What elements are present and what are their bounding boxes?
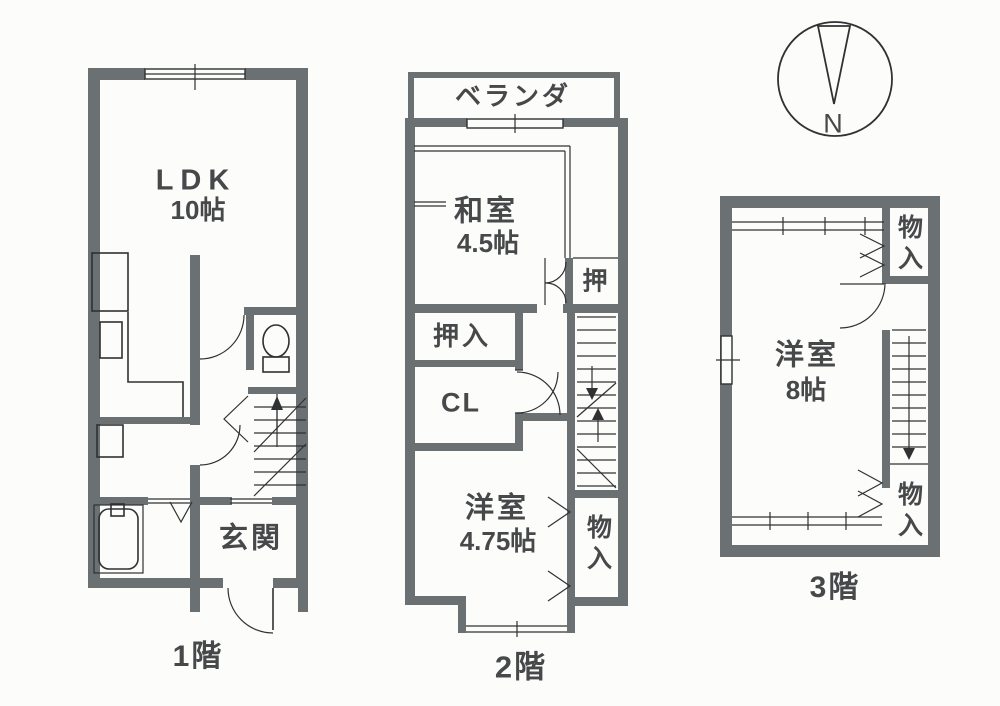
- entrance-door-arc: [228, 588, 273, 633]
- storage-label-monoire-2f: 物入: [585, 514, 610, 576]
- room-size-yoshitsu-2f: 4.75帖: [460, 528, 537, 554]
- stairs-up-arrow: [271, 396, 283, 410]
- floor1-top-window: [145, 64, 245, 90]
- room-label-washitsu: 和室: [454, 198, 518, 227]
- stairs-2f: [577, 317, 616, 488]
- kitchen-sink: [100, 322, 122, 358]
- washer-icon: [97, 425, 123, 457]
- bath-door-opening: [148, 499, 190, 503]
- storage-label-monoire-3f-top: 物入: [896, 214, 921, 276]
- bathtub-icon: [99, 509, 138, 569]
- washroom-door-arc: [200, 425, 240, 465]
- genkan-opening: [230, 499, 272, 503]
- floor-plan-sheet: LDK 10帖 玄関 1階 ベランダ 和室 4.5帖 押 押入 CL 洋室 4.…: [0, 0, 1000, 706]
- floor3-label: 3階: [810, 573, 861, 603]
- floor3-top-window: [732, 217, 884, 235]
- closet-label-oshi: 押: [582, 270, 607, 295]
- floor2-bay-window: [466, 621, 567, 637]
- stairs-up-arrow: [592, 408, 604, 420]
- stairs-3f: [890, 330, 928, 464]
- folding-door-mark: [224, 396, 248, 442]
- room-label-yoshitsu-2f: 洋室: [465, 495, 529, 524]
- room-size-ldk: 10帖: [171, 197, 226, 223]
- floor2-label: 2階: [495, 652, 547, 683]
- veranda-label: ベランダ: [455, 83, 571, 109]
- room-label-yoshitsu-3f: 洋室: [775, 342, 839, 371]
- floor1-label: 1階: [173, 642, 224, 672]
- closet-label-cl: CL: [441, 390, 481, 417]
- faucet-icon: [111, 504, 124, 516]
- kitchen-counter: [92, 253, 183, 417]
- toilet-icon: [263, 325, 289, 372]
- closet-label-oshiire: 押入: [433, 323, 491, 349]
- room-label-genkan: 玄関: [219, 525, 283, 554]
- room-size-yoshitsu-3f: 8帖: [786, 377, 826, 403]
- monoire-3f-bottom-doors: [858, 470, 882, 517]
- cl-double-doors: [515, 370, 560, 415]
- stairs-down-arrow: [903, 448, 915, 460]
- room-size-washitsu: 4.5帖: [457, 230, 519, 256]
- room-label-ldk: LDK: [156, 167, 237, 196]
- bathroom: [94, 504, 143, 573]
- storage-label-monoire-3f-bottom: 物入: [896, 481, 921, 543]
- floor2-top-window: [467, 114, 563, 133]
- floor3-bottom-window: [732, 512, 882, 530]
- compass-north-label: N: [823, 111, 843, 138]
- compass-needle-icon: [818, 26, 850, 104]
- monoire-3f-top-doors: [860, 234, 884, 277]
- bath-door-mark: [170, 502, 192, 522]
- hall-door-arc: [200, 315, 244, 359]
- floor3-left-window: [716, 336, 740, 384]
- stairs-break-line: [577, 383, 616, 488]
- stairs-down-arrow: [586, 388, 598, 400]
- floor3-room-door: [840, 283, 885, 328]
- monoire-2f-doors: [548, 497, 570, 601]
